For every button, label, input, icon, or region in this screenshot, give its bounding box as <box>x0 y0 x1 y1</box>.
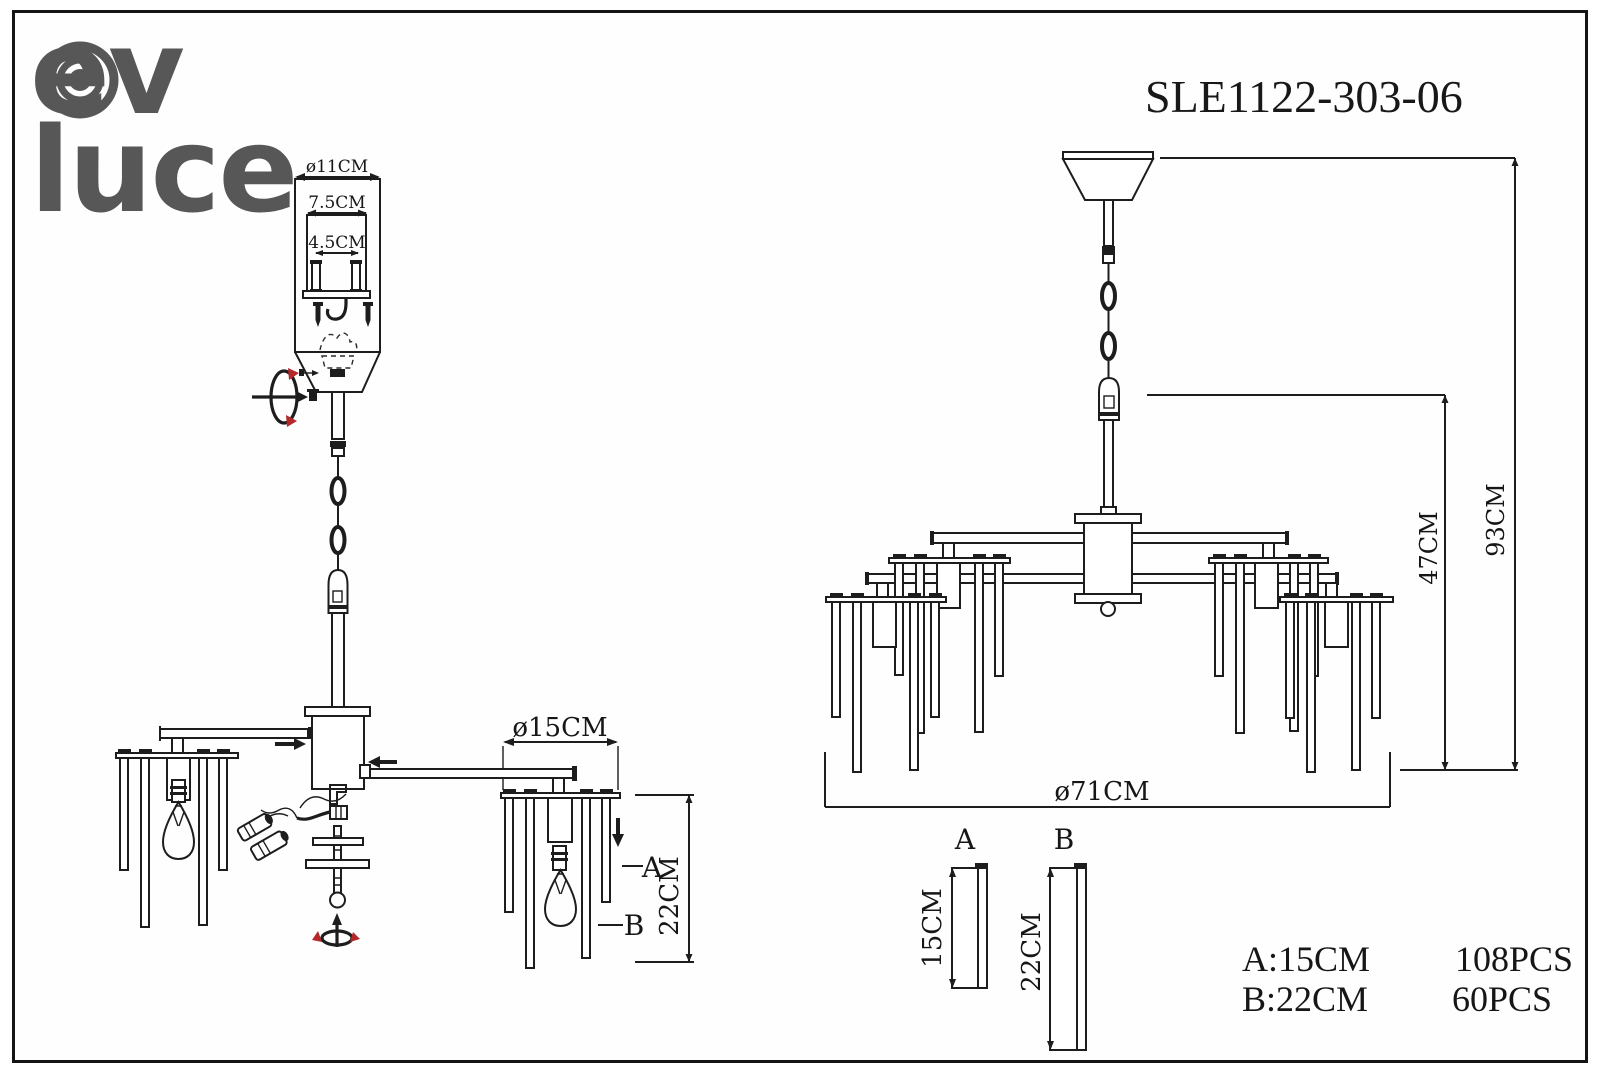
finial-rod <box>306 826 369 947</box>
hanging-rod <box>219 758 227 870</box>
mount-bar <box>303 291 370 298</box>
exploded-view: ø11CM 7.5CM 4.5CM <box>116 157 694 968</box>
legend-b-qty: 60PCS <box>1452 979 1552 1019</box>
hub-assembled <box>1075 514 1141 616</box>
hanging-rod <box>141 758 149 927</box>
right-arm-assembly: ø15CM A <box>370 713 694 968</box>
legend-b-spec: B:22CM <box>1242 979 1368 1019</box>
suspension-chain <box>1099 200 1119 514</box>
hanging-rod <box>602 798 610 902</box>
dim-total-height-label: 93CM <box>1482 483 1510 556</box>
parts-legend: A:15CM 108PCS B:22CM 60PCS <box>1242 939 1573 1019</box>
part-b-length: 22CM <box>1017 912 1047 992</box>
part-b-label: B <box>1054 823 1075 856</box>
insert-arrow-down <box>612 834 624 847</box>
chain-link <box>1102 333 1115 359</box>
wiring-detail <box>237 785 347 861</box>
anchor-screw <box>313 302 323 327</box>
part-a-length: 15CM <box>918 888 948 968</box>
legend-a-spec: A:15CM <box>1242 939 1370 979</box>
instruction-diagram: ø11CM 7.5CM 4.5CM <box>0 0 1600 1075</box>
chain-link <box>332 527 345 553</box>
dim-rod-b-length: 22CM <box>655 856 685 936</box>
part-a-label: A <box>954 823 976 856</box>
ball-finial <box>1101 602 1115 616</box>
dim-bracket-width: 7.5CM <box>308 193 365 213</box>
rod-label-b: B <box>624 909 645 942</box>
hanging-rod <box>526 798 534 968</box>
legend-a-qty: 108PCS <box>1455 939 1573 979</box>
hanging-rod <box>582 798 590 958</box>
suspension-chain-exploded <box>329 392 349 707</box>
dim-screw-spacing: 4.5CM <box>308 233 365 253</box>
insert-arrow-right <box>294 738 306 750</box>
terminal-block <box>330 806 347 819</box>
shade-tube <box>548 798 572 842</box>
left-arm-assembly <box>116 726 308 927</box>
dim-canopy-diameter: ø11CM <box>306 157 368 177</box>
hanging-rod <box>199 758 207 925</box>
mount-detail: ø11CM 7.5CM 4.5CM <box>295 157 380 392</box>
candle-bulb <box>163 802 194 859</box>
hanging-rod <box>505 798 513 912</box>
lamp-socket <box>172 780 185 802</box>
part-b: B 22CM <box>1017 823 1087 1050</box>
rotation-arrow-bottom <box>312 913 360 947</box>
candle-bulb <box>545 870 576 926</box>
dim-diameter-label: ø71CM <box>1054 777 1149 807</box>
dim-body-height-label: 47CM <box>1415 511 1443 584</box>
part-a: A 15CM <box>918 823 988 988</box>
assembled-view: ø71CM 47CM 93CM <box>825 152 1519 807</box>
ceiling-hook <box>327 298 346 319</box>
dim-disc-diameter: ø15CM <box>512 713 607 743</box>
chain-link <box>332 478 345 504</box>
ball-finial <box>330 893 345 908</box>
ceiling-canopy <box>1063 152 1153 200</box>
anchor-screw <box>363 302 373 327</box>
dim-total-height: 93CM <box>1160 158 1519 770</box>
hanging-rod <box>120 758 128 870</box>
chain-link <box>1102 283 1115 309</box>
